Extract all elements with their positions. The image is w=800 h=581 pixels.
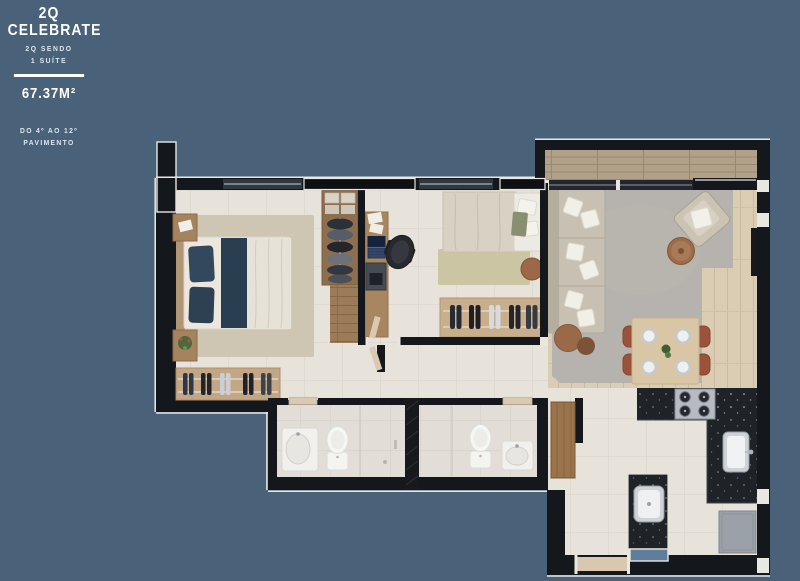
service-window	[630, 549, 668, 561]
bed1-runner	[221, 238, 248, 328]
bed1-pillow	[188, 287, 214, 324]
island-counter	[628, 474, 668, 549]
shaft	[405, 398, 419, 490]
bed1-pillow	[188, 245, 215, 282]
shower-drain	[383, 460, 387, 464]
shoe-bench	[440, 298, 545, 337]
poster: 2Q CELEBRATE 2Q SENDO 1 SUÍTE 67.37M² DO…	[0, 0, 800, 581]
centerpiece-plant	[662, 345, 671, 354]
floor-plan	[0, 0, 800, 581]
bed2-blanket	[511, 211, 528, 236]
side-table	[577, 337, 595, 355]
dining-set	[623, 318, 710, 384]
laptop-screen	[368, 236, 386, 247]
entry-door	[551, 402, 575, 478]
entry-sill	[577, 557, 627, 571]
toilet	[470, 425, 491, 469]
tv-panel	[751, 228, 757, 276]
closet-floor	[330, 285, 358, 343]
shoe-rack	[176, 368, 280, 400]
sofa	[548, 189, 605, 333]
bedroom-2	[438, 192, 545, 337]
bed2-mattress	[443, 192, 516, 252]
toilet	[327, 427, 348, 471]
hallway-floor	[330, 337, 548, 398]
kitchen-sink	[723, 432, 753, 472]
pouf	[521, 258, 543, 280]
stove	[675, 389, 715, 419]
bathroom1-door	[289, 398, 317, 405]
balcony-deck	[545, 150, 757, 180]
bathroom2-door	[503, 398, 532, 405]
bedroom2-rug	[438, 249, 530, 285]
washing-machine	[719, 511, 756, 553]
